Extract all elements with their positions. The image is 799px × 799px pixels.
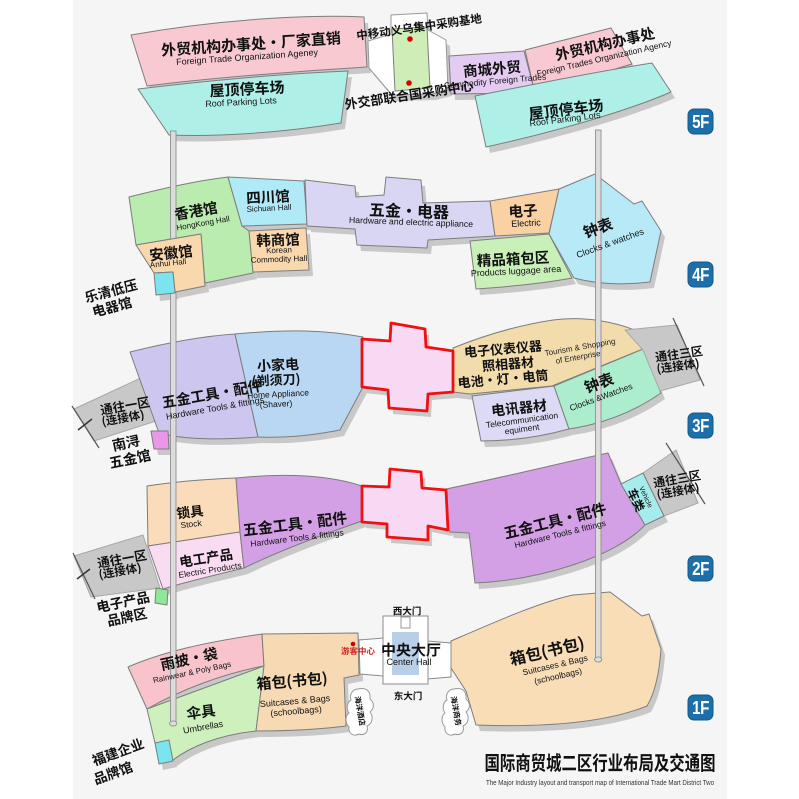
svg-text:Center Hall: Center Hall	[386, 657, 431, 667]
svg-text:4F: 4F	[692, 265, 709, 286]
svg-text:5F: 5F	[692, 112, 709, 133]
svg-text:1F: 1F	[692, 698, 709, 719]
svg-text:3F: 3F	[692, 416, 709, 437]
svg-text:(Shaver): (Shaver)	[259, 398, 292, 410]
svg-text:Electric: Electric	[511, 217, 541, 229]
svg-text:The Major Industry layout and: The Major Industry layout and transport …	[486, 780, 714, 787]
svg-text:2F: 2F	[692, 559, 709, 580]
